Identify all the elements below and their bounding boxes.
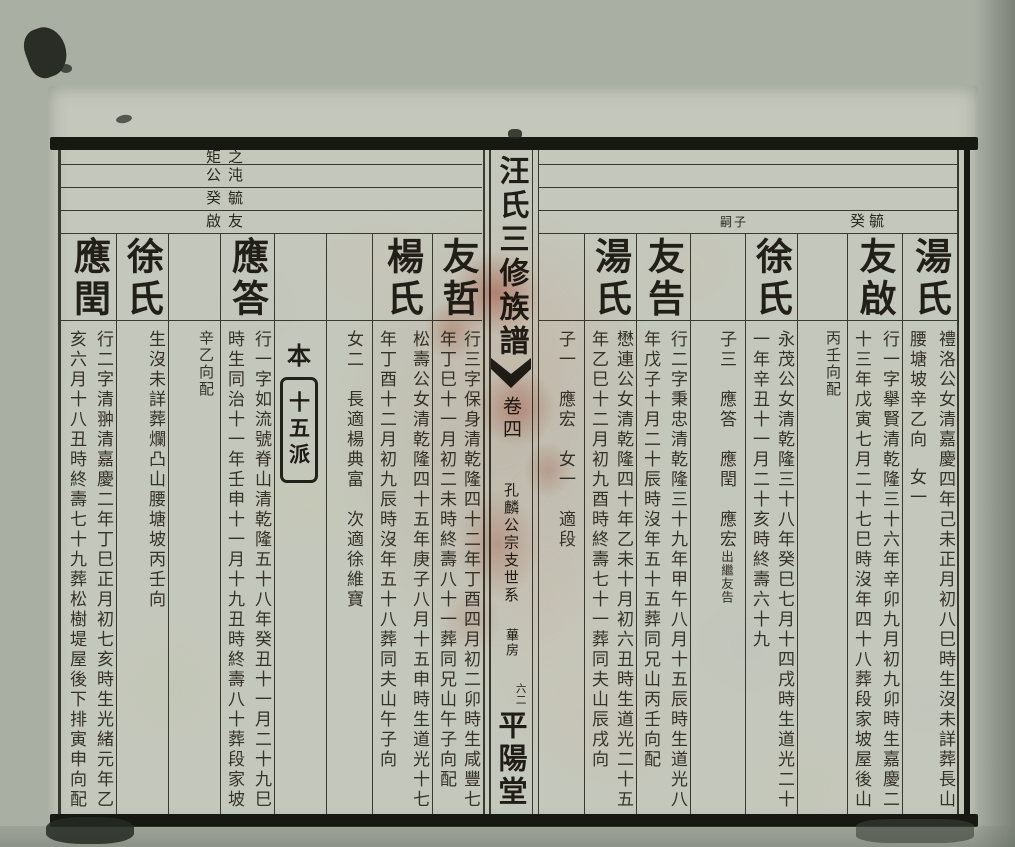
- ink-dot-top-left: [60, 64, 72, 73]
- frame-left-border: [58, 148, 61, 816]
- entry-name: 應答: [229, 237, 266, 321]
- ancestry-row: 癸毓: [202, 189, 254, 207]
- entry-column-13: 應答行一字如流號脊山清乾隆五十八年癸丑十一月二十九巳時生同治十一年壬申十一月十九…: [220, 233, 274, 814]
- entry-name: 應閏: [71, 237, 108, 321]
- entry-text-right: 行三字保身清乾隆四十二年丁酉四月初二卯時生咸豐七: [461, 330, 478, 822]
- child-name: 適段: [555, 510, 575, 550]
- frame-right-outer-border: [964, 145, 970, 819]
- entry-name: 徐氏: [753, 237, 790, 321]
- entry-text-left: 時生同治十一年壬申十一月十九丑時終壽八十葬段家坡: [225, 330, 242, 822]
- generation-badge-box: 十五派: [280, 377, 318, 483]
- ancestry-row: 公沌: [202, 166, 254, 184]
- entry-name: 湯氏: [592, 237, 629, 321]
- header-rule: [61, 210, 482, 211]
- hall-mark: 平陽堂: [496, 710, 525, 809]
- child-name: 女二: [343, 330, 363, 370]
- entry-column-4: 子三 應答 應閏 應宏出繼友告: [690, 233, 745, 814]
- children-list: 子三 應答 應閏 應宏出繼友告: [717, 330, 734, 822]
- entry-column-2: 丙壬向配: [797, 233, 847, 814]
- child-name: 子三: [716, 330, 736, 370]
- ancestry-row: 啟友: [202, 212, 254, 230]
- entry-text-right: 永茂公女清乾隆三十八年癸巳七月十四戌時生道光二十: [775, 330, 792, 822]
- photo-edge-bottom: [0, 826, 1015, 847]
- entry-text-right: 松壽公女清乾隆四十五年庚子八月十五申時生道光十七: [410, 330, 427, 822]
- entry-name: 楊氏: [384, 237, 421, 321]
- entry-text-right: 行二字清翀清嘉慶二年丁巳正月初七亥時生光緒元年乙: [94, 330, 111, 822]
- heir-label: 嗣子: [720, 216, 748, 228]
- entry-text-left: 亥六月十八丑時終壽七十九葬松樹堤屋後下排寅申向配: [67, 330, 84, 822]
- children-list: 女二 長適楊典富 次適徐維寶: [344, 330, 361, 822]
- entry-text-right: 行二字秉忠清乾隆三十九年甲午八月十五辰時生道光八: [668, 330, 685, 822]
- entry-name: 徐氏: [124, 237, 161, 321]
- child-name: 子一: [555, 330, 575, 370]
- entry-text-left: 年戊子十月二十辰時沒年五十五葬同兄山丙壬向配: [641, 330, 658, 822]
- entry-column-6: 湯氏懋連公女清乾隆四十年乙未十月初六丑時生道光二十五年乙巳十二月初九酉時終壽七十…: [584, 233, 636, 814]
- entry-column-14: 辛乙向配: [168, 233, 220, 814]
- entry-name: 友告: [645, 237, 682, 321]
- header-rule: [61, 187, 482, 188]
- scanned-genealogy-page: 矩之公沌癸毓啟友癸毓嗣子 湯氏禮洛公女清嘉慶四年己未正月初八巳時生沒未詳葬長山腰…: [0, 0, 1015, 847]
- children-list: 子一 應宏 女一 適段: [556, 330, 573, 822]
- entry-text-right: 生沒未詳葬爛凸山腰塘坡丙壬向: [146, 330, 163, 822]
- entry-text-right: 行一字如流號脊山清乾隆五十八年癸丑十一月二十九巳: [252, 330, 269, 822]
- entry-text-left: 十三年戊寅七月二十七巳時沒年四十八葬段家坡屋後山: [852, 330, 869, 822]
- entry-column-16: 應閏行二字清翀清嘉慶二年丁巳正月初七亥時生光緒元年乙亥六月十八丑時終壽七十九葬松…: [62, 233, 116, 814]
- ink-blotch-top-left: [19, 22, 74, 83]
- header-rule: [538, 210, 957, 211]
- entry-column-15: 徐氏生沒未詳葬爛凸山腰塘坡丙壬向: [116, 233, 168, 814]
- entry-text-right: 懋連公女清乾隆四十年乙未十月初六丑時生道光二十五: [614, 330, 631, 822]
- entry-text-left: 年丁巳十一月初二未時終壽八十一葬同兄山午子向配: [437, 330, 454, 822]
- entry-column-0: 湯氏禮洛公女清嘉慶四年己未正月初八巳時生沒未詳葬長山腰塘坡辛乙向女一: [902, 233, 958, 814]
- child-name: 應閏: [716, 450, 736, 490]
- entry-name: 友啟: [856, 237, 893, 321]
- header-rule: [61, 164, 482, 165]
- generation-badge-label: 十五派: [289, 391, 310, 469]
- child-name: 應宏: [555, 390, 575, 430]
- child-name: 女一: [555, 450, 575, 490]
- entry-text-left: 年丁酉十二月初九辰時沒年五十八葬同夫山午子向: [377, 330, 394, 822]
- entry-text-left: 年乙巳十二月初九酉時終壽七十一葬同夫山辰戌向: [589, 330, 606, 822]
- entry-column-5: 友告行二字秉忠清乾隆三十九年甲午八月十五辰時生道光八年戊子十月二十辰時沒年五十五…: [636, 233, 690, 814]
- child-name: 次適徐維寶: [343, 510, 363, 610]
- photo-edge-right: [974, 0, 1015, 847]
- entry-column-11: 女二 長適楊典富 次適徐維寶: [326, 233, 372, 814]
- entry-column-3: 徐氏永茂公女清乾隆三十八年癸巳七月十四戌時生道光二十一年辛丑十一月二十亥時終壽六…: [745, 233, 797, 814]
- entry-column-10: 楊氏松壽公女清乾隆四十五年庚子八月十五申時生道光十七年丁酉十二月初九辰時沒年五十…: [372, 233, 432, 814]
- entry-column-7: 子一 應宏 女一 適段: [537, 233, 584, 814]
- entry-text-left: 一年辛丑十一月二十亥時終壽六十九: [750, 330, 767, 822]
- entry-column-9: 友哲行三字保身清乾隆四十二年丁酉四月初二卯時生咸豐七年丁巳十一月初二未時終壽八十…: [432, 233, 483, 814]
- child-name: 長適楊典富: [343, 390, 363, 490]
- branch-label: 蓽房: [504, 628, 517, 658]
- title-column: 汪氏三修族譜 卷四 孔麟公宗支世系 蓽房 六二 平陽堂: [483, 150, 538, 815]
- column-separator: [274, 233, 275, 814]
- child-name: 應宏: [716, 510, 736, 550]
- entry-note: 女一: [907, 468, 924, 847]
- frame-top-bar: [50, 137, 978, 150]
- entry-name: 湯氏: [912, 237, 949, 321]
- father-label: 癸毓: [850, 214, 888, 229]
- generation-badge: 本 十五派: [278, 336, 320, 483]
- ancestry-row: 矩之: [202, 148, 254, 166]
- leaf-number: 六二: [515, 683, 526, 706]
- entry-column-1: 友啟行一字擧賢清乾隆三十六年辛卯九月初九卯時生嘉慶二十三年戊寅七月二十七巳時沒年…: [847, 233, 902, 814]
- children-note: 出繼友告: [719, 550, 734, 604]
- generation-badge-prefix: 本: [278, 336, 320, 371]
- book-title: 汪氏三修族譜: [496, 155, 526, 359]
- entry-text-right: 禮洛公女清嘉慶四年己未正月初八巳時生沒未詳葬長山: [936, 330, 953, 822]
- header-rule: [538, 187, 957, 188]
- entry-name: 友哲: [439, 237, 476, 321]
- child-name: 應答: [716, 390, 736, 430]
- entry-overflow-text: 丙壬向配: [825, 330, 840, 822]
- section-label: 孔麟公宗支世系: [503, 482, 518, 605]
- volume-label: 卷四: [501, 396, 520, 442]
- entry-overflow-text: 辛乙向配: [198, 330, 213, 822]
- entry-text-right: 行一字擧賢清乾隆三十六年辛卯九月初九卯時生嘉慶二: [880, 330, 897, 822]
- fishtail-mark: [489, 357, 533, 389]
- header-rule: [538, 164, 957, 165]
